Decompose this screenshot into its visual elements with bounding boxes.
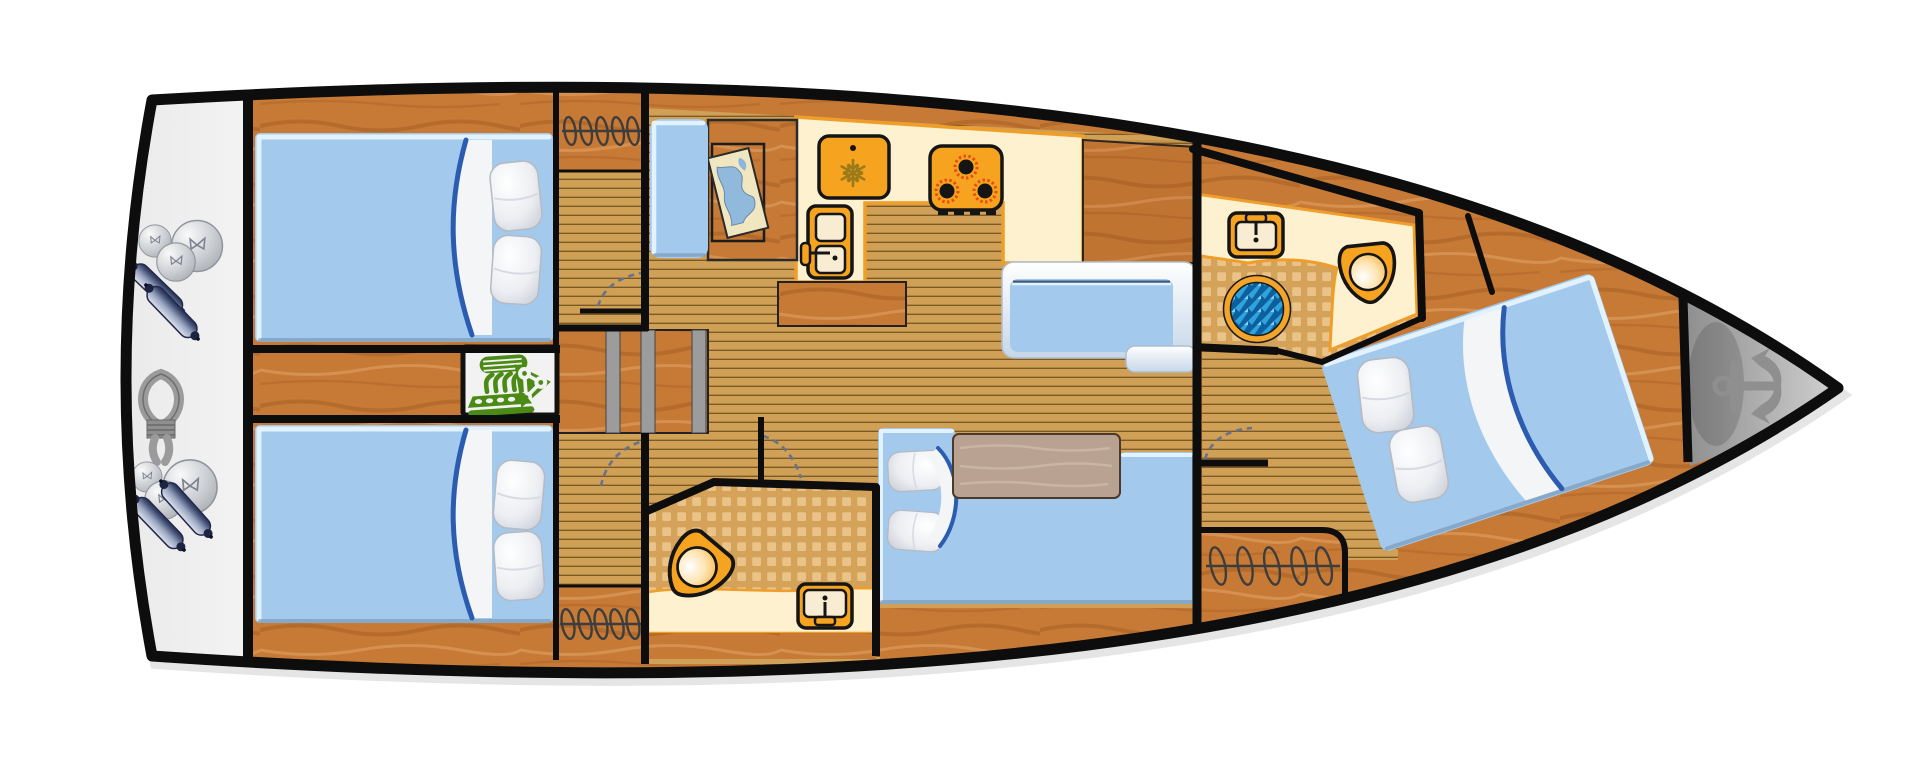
pillow-icon <box>1356 356 1416 435</box>
pillow-icon <box>490 234 543 305</box>
dinette-bench <box>1002 262 1196 358</box>
galley-island <box>778 282 906 326</box>
fender-ball-icon <box>157 243 195 281</box>
aft-cabin-port-bed <box>255 133 553 342</box>
faucet-handle <box>801 243 810 265</box>
anchor-locker <box>1683 296 1900 466</box>
cabinet-tint <box>1083 140 1196 263</box>
salon-table <box>953 434 1120 498</box>
corridor-floor-bottom <box>556 433 645 586</box>
shower-drain-icon <box>1224 276 1291 343</box>
nav-seat <box>650 119 708 258</box>
galley-sink-icon <box>801 206 852 278</box>
aft-head-room <box>645 482 876 659</box>
pillow-icon <box>492 459 546 531</box>
pillow-icon <box>493 530 546 601</box>
corridor-floor-top <box>556 170 645 330</box>
fridge-icon <box>819 136 889 198</box>
yacht-floor-plan <box>0 0 1920 760</box>
washbasin-icon <box>1229 213 1283 257</box>
dinette-step <box>1126 346 1196 372</box>
stove-icon <box>930 146 1002 215</box>
hull-interior <box>40 52 1900 708</box>
pillow-icon <box>489 160 544 233</box>
washbasin-icon <box>798 584 852 628</box>
aft-cabin-starboard-bed <box>255 425 553 623</box>
engine-compartment <box>463 347 557 417</box>
companionway-steps <box>556 330 708 433</box>
